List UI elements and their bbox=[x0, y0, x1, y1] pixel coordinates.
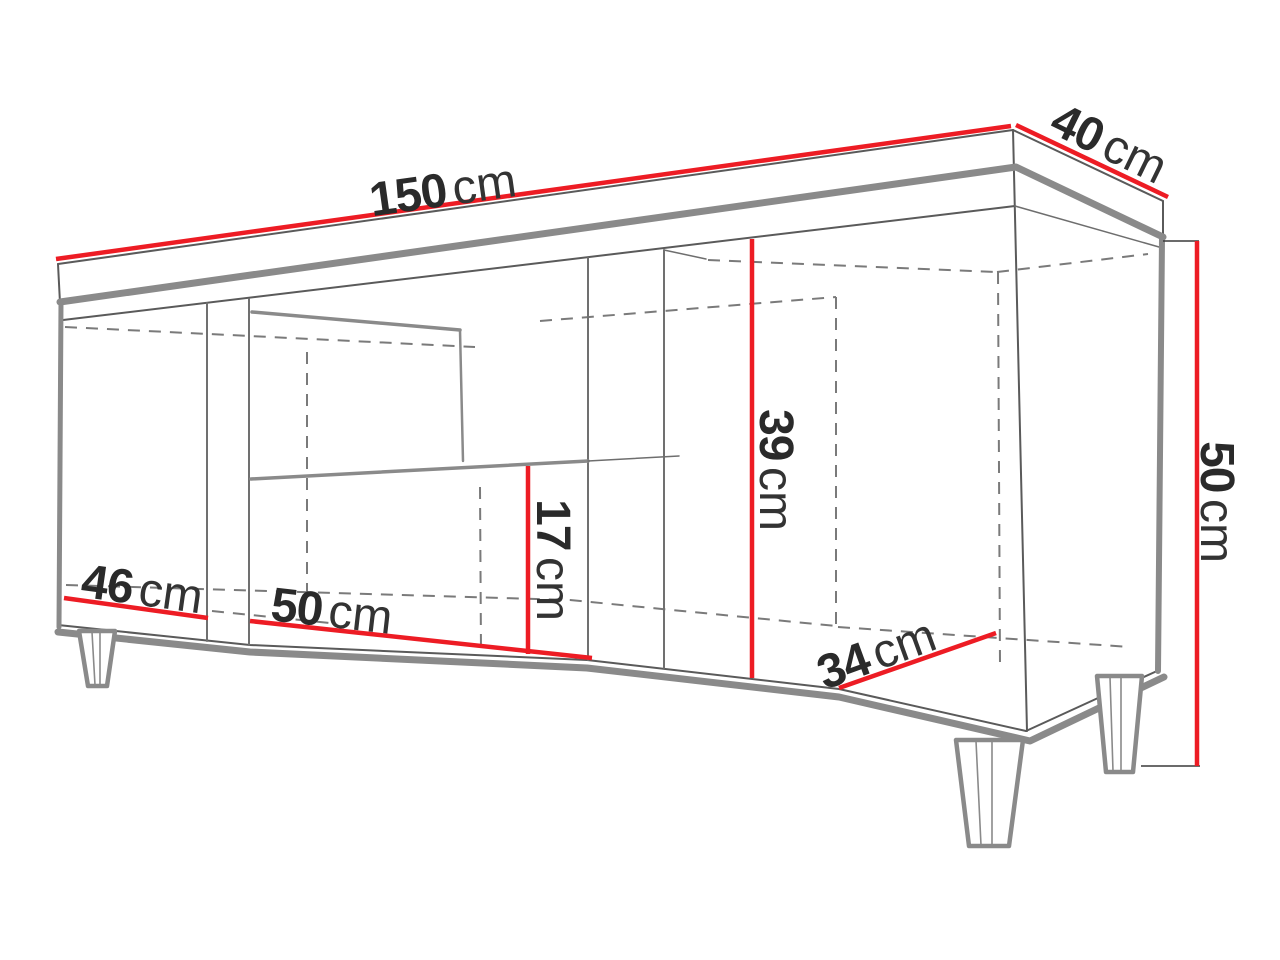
dimension-unit: cm bbox=[326, 585, 396, 645]
dimension-unit: cm bbox=[1094, 119, 1175, 195]
dimension-label-interior-depth: 34 cm bbox=[810, 609, 943, 700]
cabinet-outline-thick bbox=[58, 167, 1164, 741]
left-vertical-edge bbox=[59, 302, 61, 627]
dimension-value: 34 bbox=[810, 632, 878, 700]
top-slab-bottom-edge bbox=[63, 206, 1015, 320]
dimension-label-right-interior-height: 39 cm bbox=[749, 409, 802, 531]
hidden-back-top-edge-middle bbox=[540, 297, 836, 321]
dimension-unit: cm bbox=[135, 563, 206, 624]
dimension-label-top-width: 150 cm bbox=[366, 154, 519, 227]
front-right-vertical-edge bbox=[1013, 130, 1027, 731]
hidden-top-back-right-edge bbox=[997, 254, 1148, 272]
shelf-front-edge bbox=[251, 461, 588, 479]
cabinet-wireframe bbox=[58, 130, 1163, 731]
dimension-label-overall-height: 50 cm bbox=[1190, 441, 1243, 563]
dimension-label-middle-width: 50 cm bbox=[268, 578, 395, 644]
dimension-value: 50 bbox=[268, 578, 325, 636]
furniture-diagram: 150 cm 40 cm 50 cm 39 cm 17 cm 50 cm 46 … bbox=[0, 0, 1280, 960]
hidden-back-right-vertical bbox=[998, 272, 1000, 665]
dimension-unit: cm bbox=[526, 557, 579, 621]
niche-back-top-edge bbox=[252, 312, 460, 330]
top-left-corner-edge bbox=[58, 264, 60, 303]
dimension-line-top-width bbox=[56, 126, 1011, 259]
dimension-value: 39 bbox=[749, 409, 802, 460]
dimension-unit: cm bbox=[749, 467, 802, 531]
dimension-unit: cm bbox=[1190, 499, 1243, 563]
divider2-top-depth-stub bbox=[664, 250, 706, 259]
dimension-label-left-width: 46 cm bbox=[78, 555, 206, 624]
hidden-niche-corner-lower bbox=[480, 487, 481, 652]
dimension-unit: cm bbox=[865, 609, 943, 681]
dimension-label-middle-lower-height: 17 cm bbox=[526, 499, 579, 621]
dimension-label-top-depth: 40 cm bbox=[1042, 94, 1175, 195]
dimension-value: 50 bbox=[1190, 441, 1243, 492]
front-right-leg bbox=[956, 740, 1023, 846]
top-back-edge bbox=[58, 130, 1013, 264]
shelf-edge-extension bbox=[588, 456, 679, 461]
back-right-vertical-edge bbox=[1158, 238, 1162, 671]
diagram-canvas: 150 cm 40 cm 50 cm 39 cm 17 cm 50 cm 46 … bbox=[0, 0, 1280, 960]
dimension-unit: cm bbox=[449, 154, 520, 215]
back-right-leg bbox=[1097, 676, 1142, 772]
hidden-back-top-edge-left bbox=[65, 327, 475, 347]
front-left-leg bbox=[79, 631, 115, 686]
dimension-value: 17 bbox=[526, 499, 579, 550]
dimension-value: 150 bbox=[366, 164, 450, 227]
dimension-value: 46 bbox=[78, 555, 136, 615]
niche-back-corner-edge bbox=[460, 330, 463, 461]
